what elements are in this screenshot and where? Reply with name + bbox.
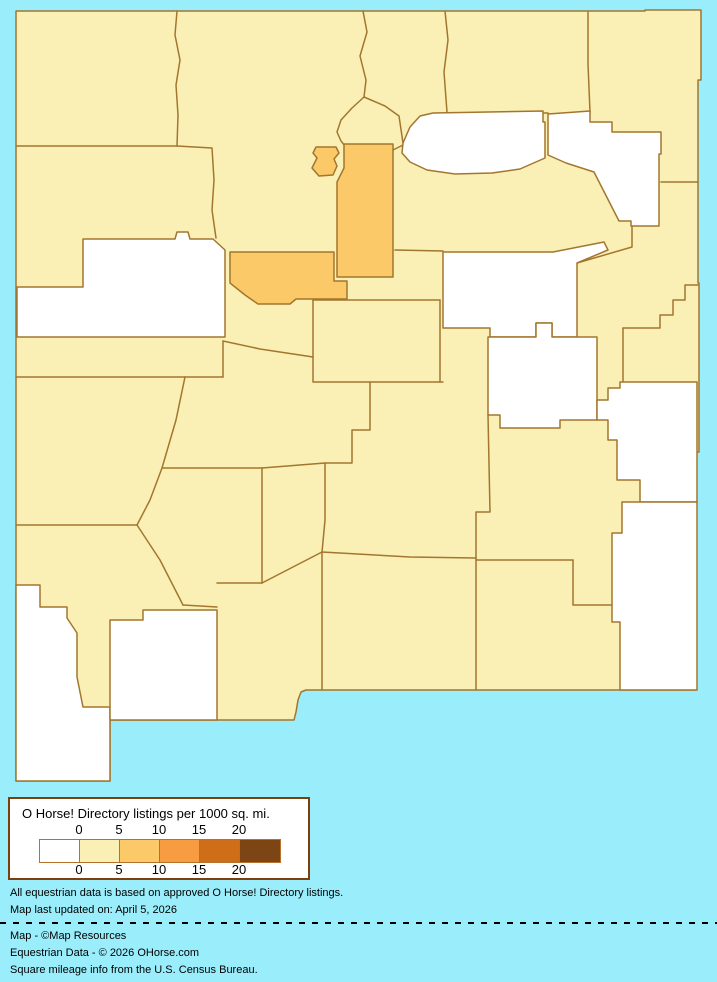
legend-tick-label: 5: [104, 862, 134, 877]
legend-swatch: [160, 840, 200, 862]
legend-swatch: [80, 840, 120, 862]
legend-tick-label: 0: [64, 822, 94, 837]
footer-credit-data: Equestrian Data - © 2026 OHorse.com: [10, 947, 199, 959]
legend-swatch: [240, 840, 280, 862]
county-luna[interactable]: [110, 610, 217, 720]
dashed-divider: [0, 922, 717, 924]
legend-tick-label: 0: [64, 862, 94, 877]
legend-ticks-top: 05101520: [10, 822, 308, 836]
legend-tick-label: 15: [184, 822, 214, 837]
legend-swatch: [200, 840, 240, 862]
legend-swatch: [40, 840, 80, 862]
county-bernalillo[interactable]: [230, 252, 347, 304]
legend-title: O Horse! Directory listings per 1000 sq.…: [22, 806, 270, 821]
legend-tick-label: 5: [104, 822, 134, 837]
legend-tick-label: 20: [224, 862, 254, 877]
new-mexico-county-map: [0, 0, 717, 790]
legend-tick-label: 10: [144, 822, 174, 837]
footer-credit-census: Square mileage info from the U.S. Census…: [10, 964, 258, 976]
legend-ticks-bottom: 05101520: [10, 862, 308, 876]
county-los-alamos[interactable]: [312, 147, 339, 176]
county-border-line: [395, 250, 443, 251]
county-lea[interactable]: [612, 502, 697, 690]
legend-box: O Horse! Directory listings per 1000 sq.…: [8, 797, 310, 880]
legend-tick-label: 15: [184, 862, 214, 877]
footer-note-data-source: All equestrian data is based on approved…: [10, 887, 343, 899]
legend-swatch: [120, 840, 160, 862]
map-page: O Horse! Directory listings per 1000 sq.…: [0, 0, 717, 982]
legend-tick-label: 10: [144, 862, 174, 877]
footer-credit-map: Map - ©Map Resources: [10, 930, 126, 942]
county-de-baca[interactable]: [488, 323, 597, 428]
legend-color-ramp: [39, 839, 281, 863]
footer-note-updated: Map last updated on: April 5, 2026: [10, 904, 177, 916]
county-mora[interactable]: [402, 111, 545, 174]
county-santa-fe[interactable]: [337, 144, 393, 277]
legend-tick-label: 20: [224, 822, 254, 837]
